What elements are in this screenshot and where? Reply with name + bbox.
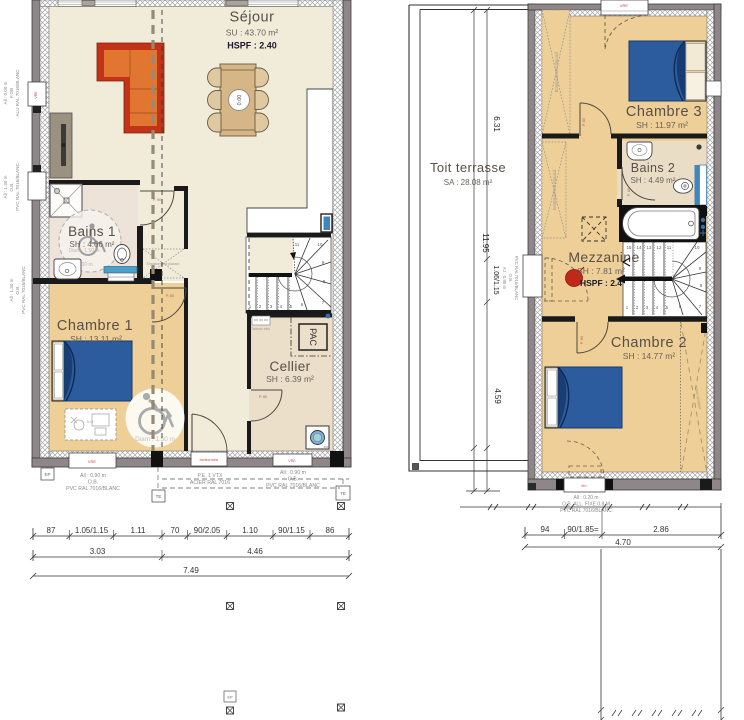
svg-text:Bains 2: Bains 2	[631, 161, 676, 175]
svg-text:O.B.: O.B.	[88, 480, 98, 486]
svg-text:Bains 1: Bains 1	[68, 224, 116, 239]
svg-text:0.00: 0.00	[237, 95, 243, 106]
svg-text:P. 90: P. 90	[153, 198, 161, 202]
svg-text:10: 10	[318, 242, 323, 247]
svg-text:P. 80: P. 80	[580, 336, 584, 344]
svg-text:11: 11	[295, 242, 300, 247]
svg-text:PVC RAL 7016/BLANC: PVC RAL 7016/BLANC	[21, 266, 26, 314]
svg-text:All : 0.90 m: All : 0.90 m	[280, 470, 306, 476]
svg-text:O.B. ALL. FIXE 0.8 M: O.B. ALL. FIXE 0.8 M	[562, 502, 610, 508]
svg-text:Chambre 1: Chambre 1	[57, 318, 133, 334]
svg-text:O.B.: O.B.	[15, 285, 20, 294]
svg-text:Tableau élec.: Tableau élec.	[251, 327, 271, 331]
svg-text:7.49: 7.49	[183, 566, 199, 575]
svg-text:EP: EP	[227, 695, 233, 700]
svg-text:Chambre 2: Chambre 2	[611, 335, 687, 351]
svg-text:Cellier: Cellier	[269, 359, 310, 374]
svg-text:15: 15	[627, 245, 632, 250]
svg-text:SH : 4.49 m²: SH : 4.49 m²	[631, 176, 676, 185]
svg-text:EP: EP	[44, 472, 50, 477]
svg-text:11: 11	[667, 245, 672, 250]
svg-text:14: 14	[637, 245, 642, 250]
svg-text:13: 13	[647, 245, 652, 250]
svg-text:SH : 11.97 m²: SH : 11.97 m²	[636, 120, 688, 130]
svg-text:90/1.85=: 90/1.85=	[567, 525, 599, 534]
svg-text:O.B.: O.B.	[9, 182, 14, 191]
svg-text:HSPF : 2.4: HSPF : 2.4	[580, 278, 622, 288]
svg-text:TE: TE	[156, 494, 162, 499]
svg-text:8×8: 8×8	[87, 419, 95, 424]
svg-text:SU : 43.70 m²: SU : 43.70 m²	[226, 28, 279, 38]
svg-text:All : 0.20 m: All : 0.20 m	[573, 495, 598, 501]
svg-text:Toit terrasse: Toit terrasse	[430, 160, 506, 175]
svg-text:SH : 14.77 m²: SH : 14.77 m²	[623, 351, 676, 361]
svg-text:SH : 6.39 m²: SH : 6.39 m²	[266, 374, 314, 384]
svg-text:All : 1.30 m: All : 1.30 m	[9, 278, 14, 301]
svg-text:PVC RAL 7016/BLANC: PVC RAL 7016/BLANC	[560, 508, 612, 514]
svg-text:PAC: PAC	[308, 328, 318, 346]
svg-text:ALU RAL 7016/BLANC: ALU RAL 7016/BLANC	[15, 69, 20, 117]
svg-text:TE: TE	[340, 491, 346, 496]
svg-text:1.10: 1.10	[242, 526, 258, 535]
svg-text:90/1.15: 90/1.15	[278, 526, 305, 535]
svg-text:PVC RAL 7016/BLANC: PVC RAL 7016/BLANC	[66, 486, 120, 492]
svg-text:86: 86	[326, 526, 335, 535]
svg-text:94: 94	[541, 525, 550, 534]
svg-text:All : 0.00 m: All : 0.00 m	[3, 81, 8, 104]
svg-text:P. 80: P. 80	[259, 395, 267, 399]
svg-text:4.70: 4.70	[615, 538, 631, 547]
svg-text:SA : 28.08 m²: SA : 28.08 m²	[444, 178, 493, 187]
svg-text:d60: d60	[324, 445, 329, 449]
svg-text:Chambre 3: Chambre 3	[626, 104, 702, 120]
svg-text:P. 80: P. 80	[627, 188, 631, 196]
svg-text:4.46: 4.46	[247, 547, 263, 556]
svg-text:AJ : 0.90 m: AJ : 0.90 m	[502, 267, 507, 290]
svg-text:PVC RAL7016/BLANC: PVC RAL7016/BLANC	[514, 256, 519, 300]
svg-text:Emplacement placard: Emplacement placard	[554, 51, 559, 92]
svg-text:VRE: VRE	[88, 459, 97, 464]
svg-text:4.59: 4.59	[493, 388, 502, 404]
svg-text:fen: fen	[582, 484, 587, 488]
svg-text:P.E. 1 VTX: P.E. 1 VTX	[198, 473, 224, 479]
svg-text:2.86: 2.86	[653, 525, 669, 534]
svg-text:SH : 7.81 m²: SH : 7.81 m²	[577, 266, 625, 276]
svg-text:1.06/1.15: 1.06/1.15	[492, 265, 499, 294]
svg-text:SH : 13.11 m²: SH : 13.11 m²	[70, 334, 122, 344]
svg-text:10: 10	[695, 245, 700, 250]
svg-text:Diam : 1.50 m: Diam : 1.50 m	[135, 436, 175, 443]
svg-text:SH : 4.66 m²: SH : 4.66 m²	[70, 240, 115, 249]
svg-text:6.31: 6.31	[492, 116, 501, 132]
svg-text:VRE: VRE	[620, 3, 629, 8]
svg-text:O.B.: O.B.	[288, 477, 298, 483]
svg-text:3.03: 3.03	[90, 547, 106, 556]
svg-text:1.11: 1.11	[131, 526, 147, 535]
svg-text:bedecroche: bedecroche	[200, 458, 219, 462]
svg-text:All : 1.30 m: All : 1.30 m	[3, 175, 8, 198]
svg-text:P. 80: P. 80	[166, 294, 174, 298]
svg-text:11.95: 11.95	[481, 233, 490, 253]
svg-text:HSPF : 2.40: HSPF : 2.40	[227, 41, 277, 51]
svg-text:1.05/1.15: 1.05/1.15	[75, 526, 109, 535]
svg-text:VRE: VRE	[288, 459, 296, 463]
svg-text:PVC RAL 7016/BLANC: PVC RAL 7016/BLANC	[15, 163, 20, 211]
svg-text:ACIER RAL 7016: ACIER RAL 7016	[190, 480, 230, 486]
svg-text:F.OB: F.OB	[9, 88, 14, 98]
svg-text:Mezzanine: Mezzanine	[568, 249, 639, 265]
svg-text:70: 70	[171, 526, 180, 535]
svg-text:O.B.: O.B.	[508, 274, 513, 283]
svg-text:12: 12	[657, 245, 662, 250]
svg-text:VRE: VRE	[34, 91, 38, 99]
svg-text:P. 80: P. 80	[582, 118, 586, 126]
svg-text:90/2.05: 90/2.05	[194, 526, 221, 535]
svg-text:Séjour: Séjour	[230, 10, 275, 26]
svg-text:Emplacement placard: Emplacement placard	[552, 169, 557, 210]
svg-text:All : 0.90 m: All : 0.90 m	[80, 473, 106, 479]
svg-text:87: 87	[47, 526, 56, 535]
